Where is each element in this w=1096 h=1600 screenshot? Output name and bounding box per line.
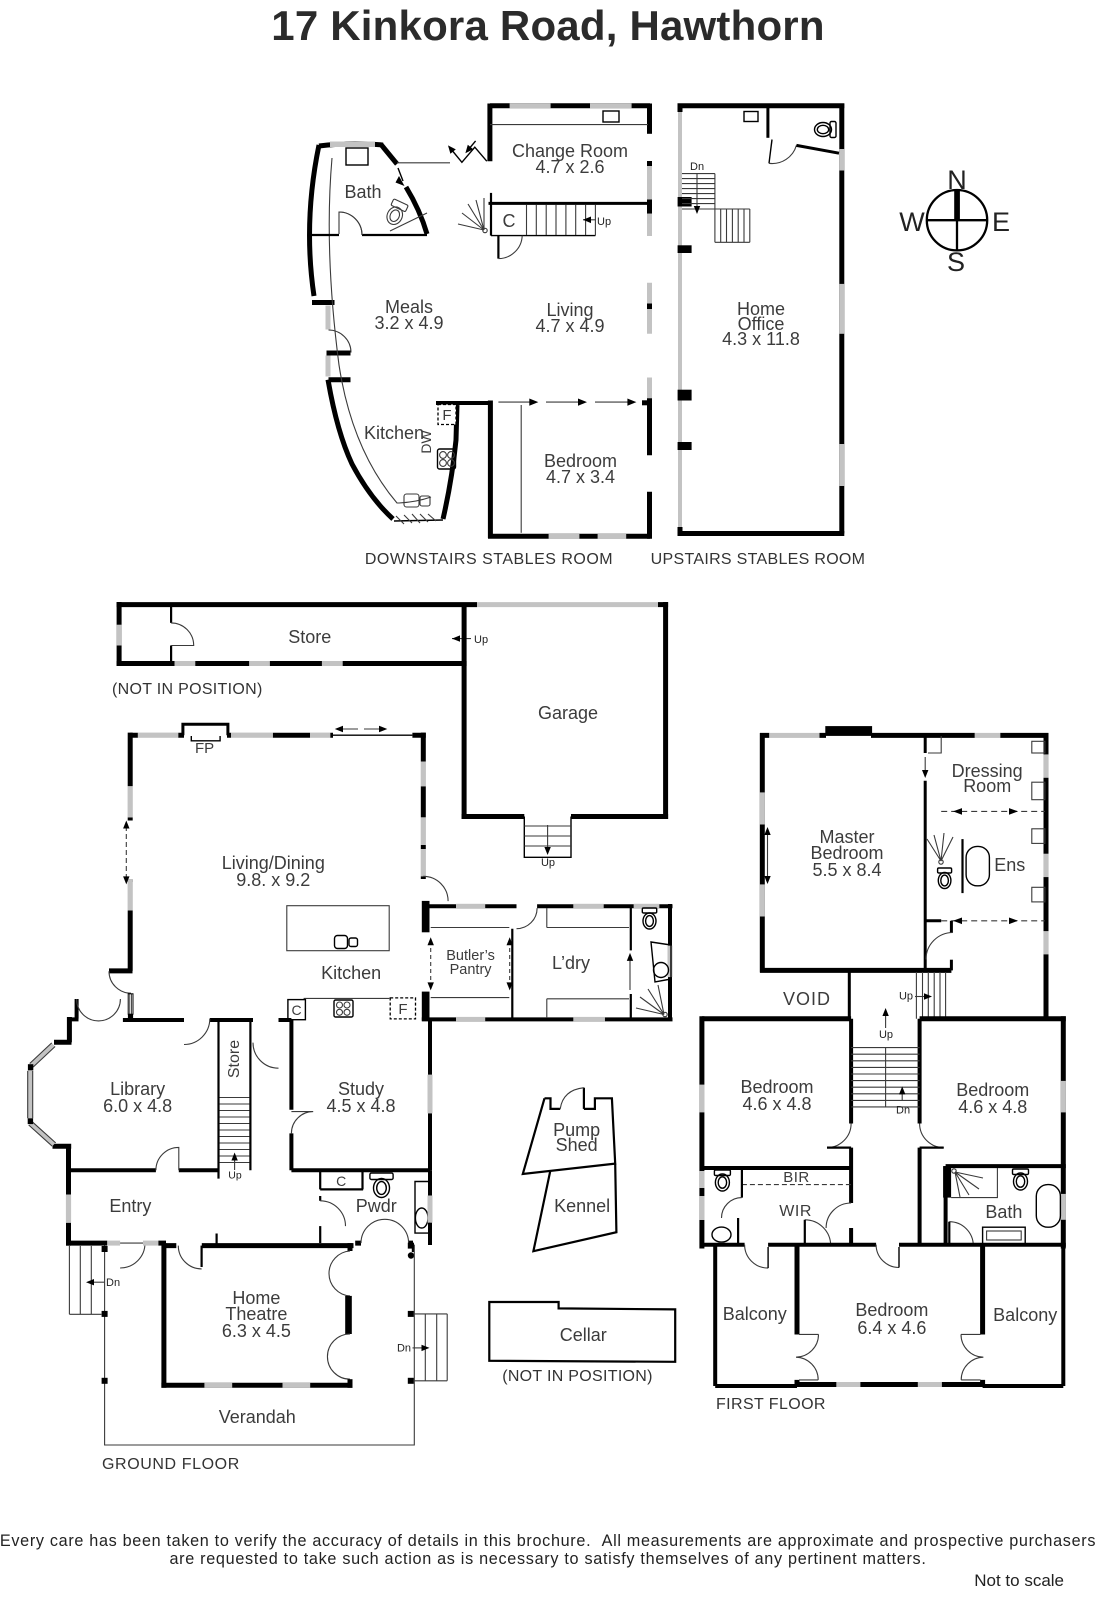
svg-text:17 Kinkora Road, Hawthorn: 17 Kinkora Road, Hawthorn (271, 2, 824, 49)
svg-text:Pwdr: Pwdr (356, 1196, 397, 1216)
svg-text:Cellar: Cellar (560, 1325, 607, 1345)
svg-text:(NOT IN POSITION): (NOT IN POSITION) (502, 1368, 653, 1385)
svg-text:4.7 x 2.6: 4.7 x 2.6 (535, 157, 604, 177)
svg-text:BIR: BIR (783, 1169, 810, 1186)
svg-text:DW: DW (418, 430, 434, 454)
svg-text:Kennel: Kennel (554, 1196, 610, 1216)
svg-text:GROUND FLOOR: GROUND FLOOR (102, 1456, 240, 1473)
svg-text:Dn: Dn (106, 1277, 120, 1289)
svg-text:Not to scale: Not to scale (974, 1571, 1064, 1590)
svg-text:FIRST FLOOR: FIRST FLOOR (716, 1396, 826, 1413)
svg-text:Up: Up (228, 1170, 242, 1182)
svg-text:WIR: WIR (779, 1203, 812, 1220)
svg-text:Every care has been taken to v: Every care has been taken to verify the … (0, 1532, 1096, 1550)
svg-text:Up: Up (541, 857, 555, 869)
svg-text:C: C (291, 1002, 301, 1018)
svg-text:4.6 x 4.8: 4.6 x 4.8 (742, 1094, 811, 1114)
svg-text:C: C (336, 1173, 346, 1189)
svg-text:Bath: Bath (344, 182, 381, 202)
svg-text:Store: Store (226, 1040, 243, 1078)
svg-text:Up: Up (597, 216, 611, 228)
svg-text:Kitchen: Kitchen (321, 963, 381, 983)
svg-text:Up: Up (474, 634, 488, 646)
svg-text:4.3 x 11.8: 4.3 x 11.8 (722, 329, 800, 349)
svg-text:6.0 x 4.8: 6.0 x 4.8 (103, 1096, 172, 1116)
svg-text:Bedroom: Bedroom (855, 1300, 928, 1320)
svg-text:Dn: Dn (690, 161, 704, 173)
svg-text:Kitchen: Kitchen (364, 423, 424, 443)
svg-text:Pantry: Pantry (450, 962, 493, 978)
svg-text:6.4 x 4.6: 6.4 x 4.6 (857, 1318, 926, 1338)
svg-text:Dn: Dn (397, 1343, 411, 1355)
svg-text:(NOT IN POSITION): (NOT IN POSITION) (112, 681, 263, 698)
svg-text:UPSTAIRS STABLES ROOM: UPSTAIRS STABLES ROOM (651, 551, 866, 568)
svg-text:Bath: Bath (985, 1202, 1022, 1222)
svg-text:E: E (992, 207, 1010, 237)
svg-text:F: F (398, 1001, 407, 1018)
svg-text:3.2 x 4.9: 3.2 x 4.9 (374, 313, 443, 333)
svg-text:C: C (503, 211, 516, 231)
svg-text:are requested to take such act: are requested to take such action as is … (169, 1550, 926, 1568)
svg-text:L’dry: L’dry (552, 953, 590, 973)
svg-text:Shed: Shed (556, 1135, 598, 1155)
svg-text:N: N (947, 165, 967, 195)
svg-text:Up: Up (899, 991, 913, 1003)
svg-text:5.5 x 8.4: 5.5 x 8.4 (812, 860, 881, 880)
svg-text:Entry: Entry (109, 1196, 151, 1216)
svg-text:4.6 x 4.8: 4.6 x 4.8 (958, 1097, 1027, 1117)
svg-text:DOWNSTAIRS STABLES ROOM: DOWNSTAIRS STABLES ROOM (365, 551, 613, 568)
svg-text:S: S (947, 247, 965, 277)
svg-text:4.5 x 4.8: 4.5 x 4.8 (326, 1096, 395, 1116)
svg-text:VOID: VOID (783, 989, 831, 1009)
svg-text:W: W (899, 207, 925, 237)
svg-text:Dn: Dn (896, 1105, 910, 1117)
svg-text:Garage: Garage (538, 703, 598, 723)
svg-text:Verandah: Verandah (219, 1407, 296, 1427)
svg-text:6.3 x 4.5: 6.3 x 4.5 (222, 1321, 291, 1341)
svg-text:4.7 x 4.9: 4.7 x 4.9 (535, 316, 604, 336)
svg-text:Store: Store (288, 627, 331, 647)
svg-text:Ens: Ens (994, 855, 1025, 875)
svg-text:4.7 x 3.4: 4.7 x 3.4 (546, 467, 615, 487)
svg-text:F: F (442, 407, 451, 424)
svg-text:Balcony: Balcony (993, 1305, 1057, 1325)
svg-text:9.8. x 9.2: 9.8. x 9.2 (236, 870, 310, 890)
svg-text:Room: Room (963, 776, 1011, 796)
svg-text:Balcony: Balcony (723, 1304, 787, 1324)
svg-text:Up: Up (879, 1029, 893, 1041)
svg-text:FP: FP (195, 740, 214, 757)
